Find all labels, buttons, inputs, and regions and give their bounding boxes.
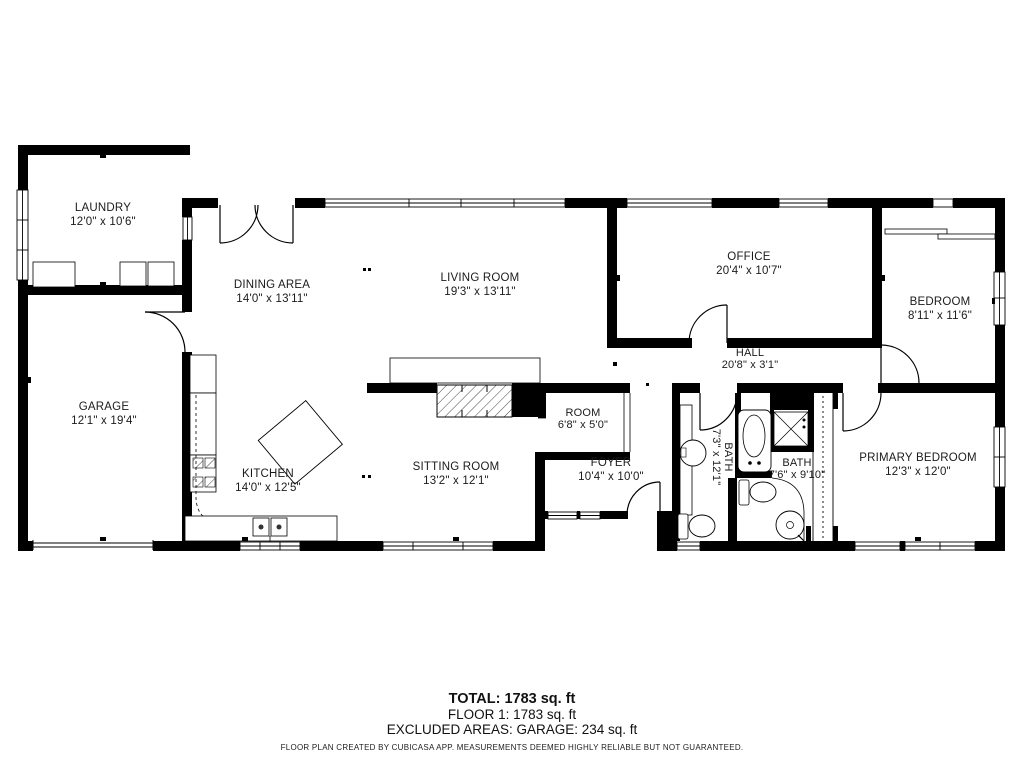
room-label-bath-1: BATH 7'3" x 12'1" [710, 429, 734, 486]
room-label-dining-area: DINING AREA 14'0" x 13'11" [234, 278, 310, 306]
room-label-living-room: LIVING ROOM 19'3" x 13'11" [441, 271, 520, 299]
laundry-counter [33, 262, 75, 287]
room-label-primary-bedroom: PRIMARY BEDROOM 12'3" x 12'0" [859, 451, 977, 479]
room-label-kitchen: KITCHEN 14'0" x 12'5" [235, 467, 301, 495]
total-area-text: TOTAL: 1783 sq. ft [449, 691, 576, 707]
toilet [739, 480, 749, 505]
room-label-foyer: FOYER 10'4" x 10'0" [578, 456, 644, 484]
room-label-laundry: LAUNDRY 12'0" x 10'6" [70, 201, 136, 229]
washer [120, 262, 146, 286]
room-label-sitting-room: SITTING ROOM 13'2" x 12'1" [413, 460, 500, 488]
dryer [148, 262, 174, 286]
fireplace [437, 385, 512, 417]
room-label-hall: HALL 20'8" x 3'1" [722, 347, 779, 371]
room-label-office: OFFICE 20'4" x 10'7" [716, 250, 782, 278]
floor-plan-drawing [0, 0, 1024, 768]
room-label-room: ROOM 6'8" x 5'0" [558, 407, 608, 431]
floor1-area-text: FLOOR 1: 1783 sq. ft [448, 707, 576, 722]
room-label-bath-2: BATH 7'6" x 9'10" [769, 457, 826, 481]
garage-door [33, 540, 153, 550]
toilet [678, 514, 688, 539]
room-label-garage: GARAGE 12'1" x 19'4" [71, 400, 137, 428]
excluded-areas-text: EXCLUDED AREAS: GARAGE: 234 sq. ft [387, 722, 638, 737]
floor-plan: LAUNDRY 12'0" x 10'6" DINING AREA 14'0" … [0, 0, 1024, 768]
disclaimer-text: FLOOR PLAN CREATED BY CUBICASA APP. MEAS… [281, 743, 744, 752]
room-label-bedroom: BEDROOM 8'11" x 11'6" [908, 295, 972, 323]
living-room-console [390, 358, 540, 383]
